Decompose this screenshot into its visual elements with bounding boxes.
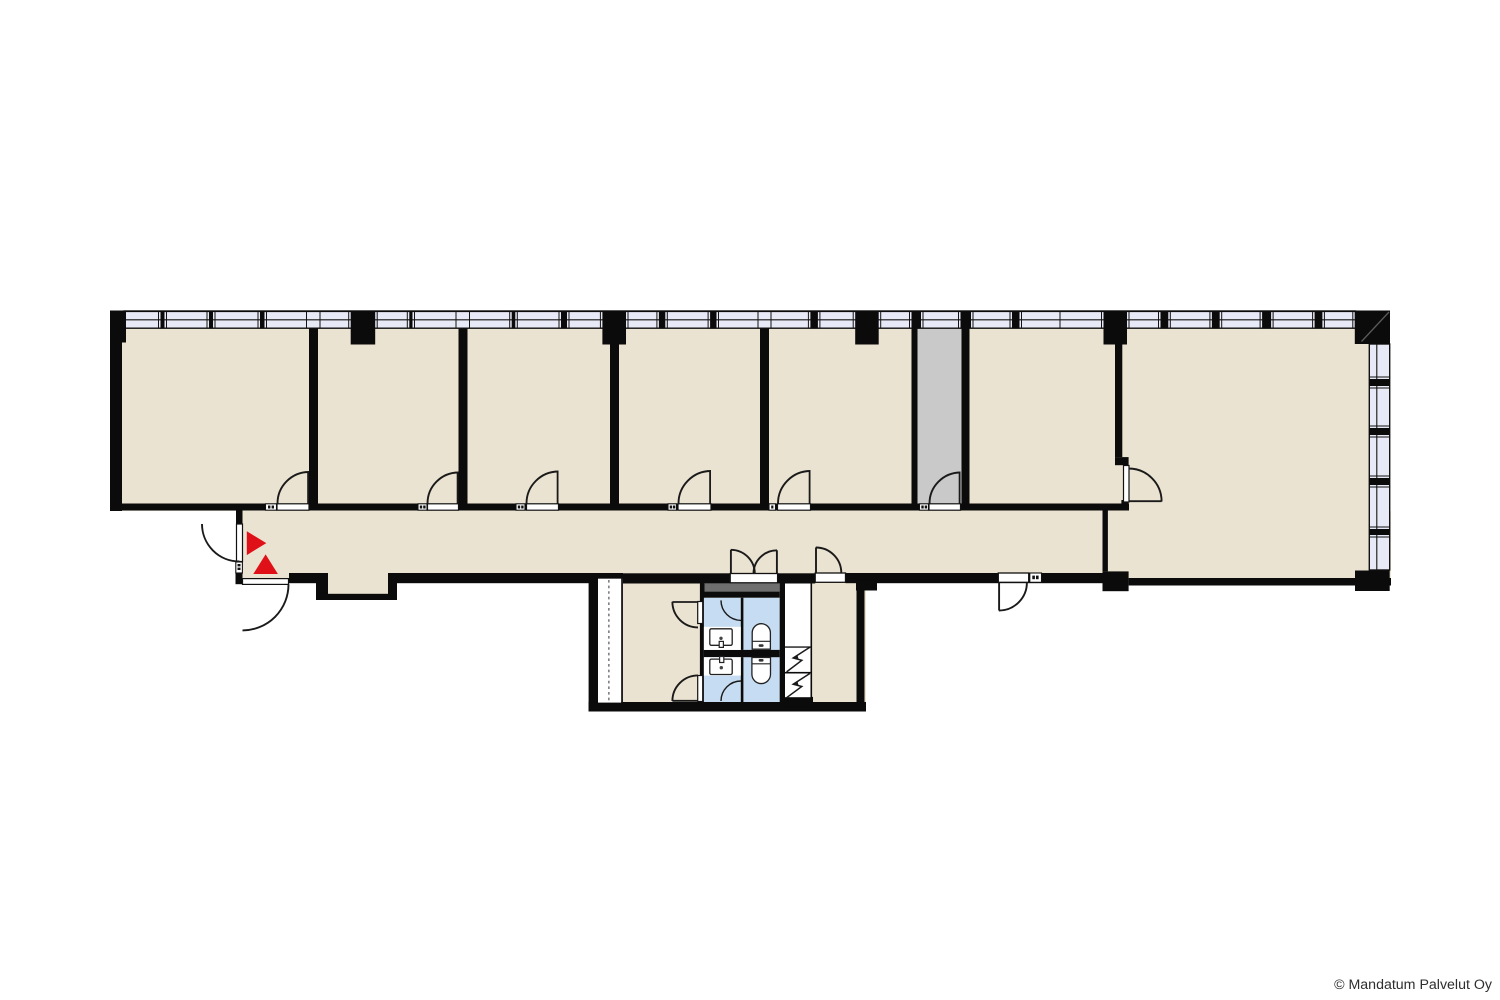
svg-text:© Mandatum Palvelut Oy: © Mandatum Palvelut Oy [1334, 977, 1493, 993]
